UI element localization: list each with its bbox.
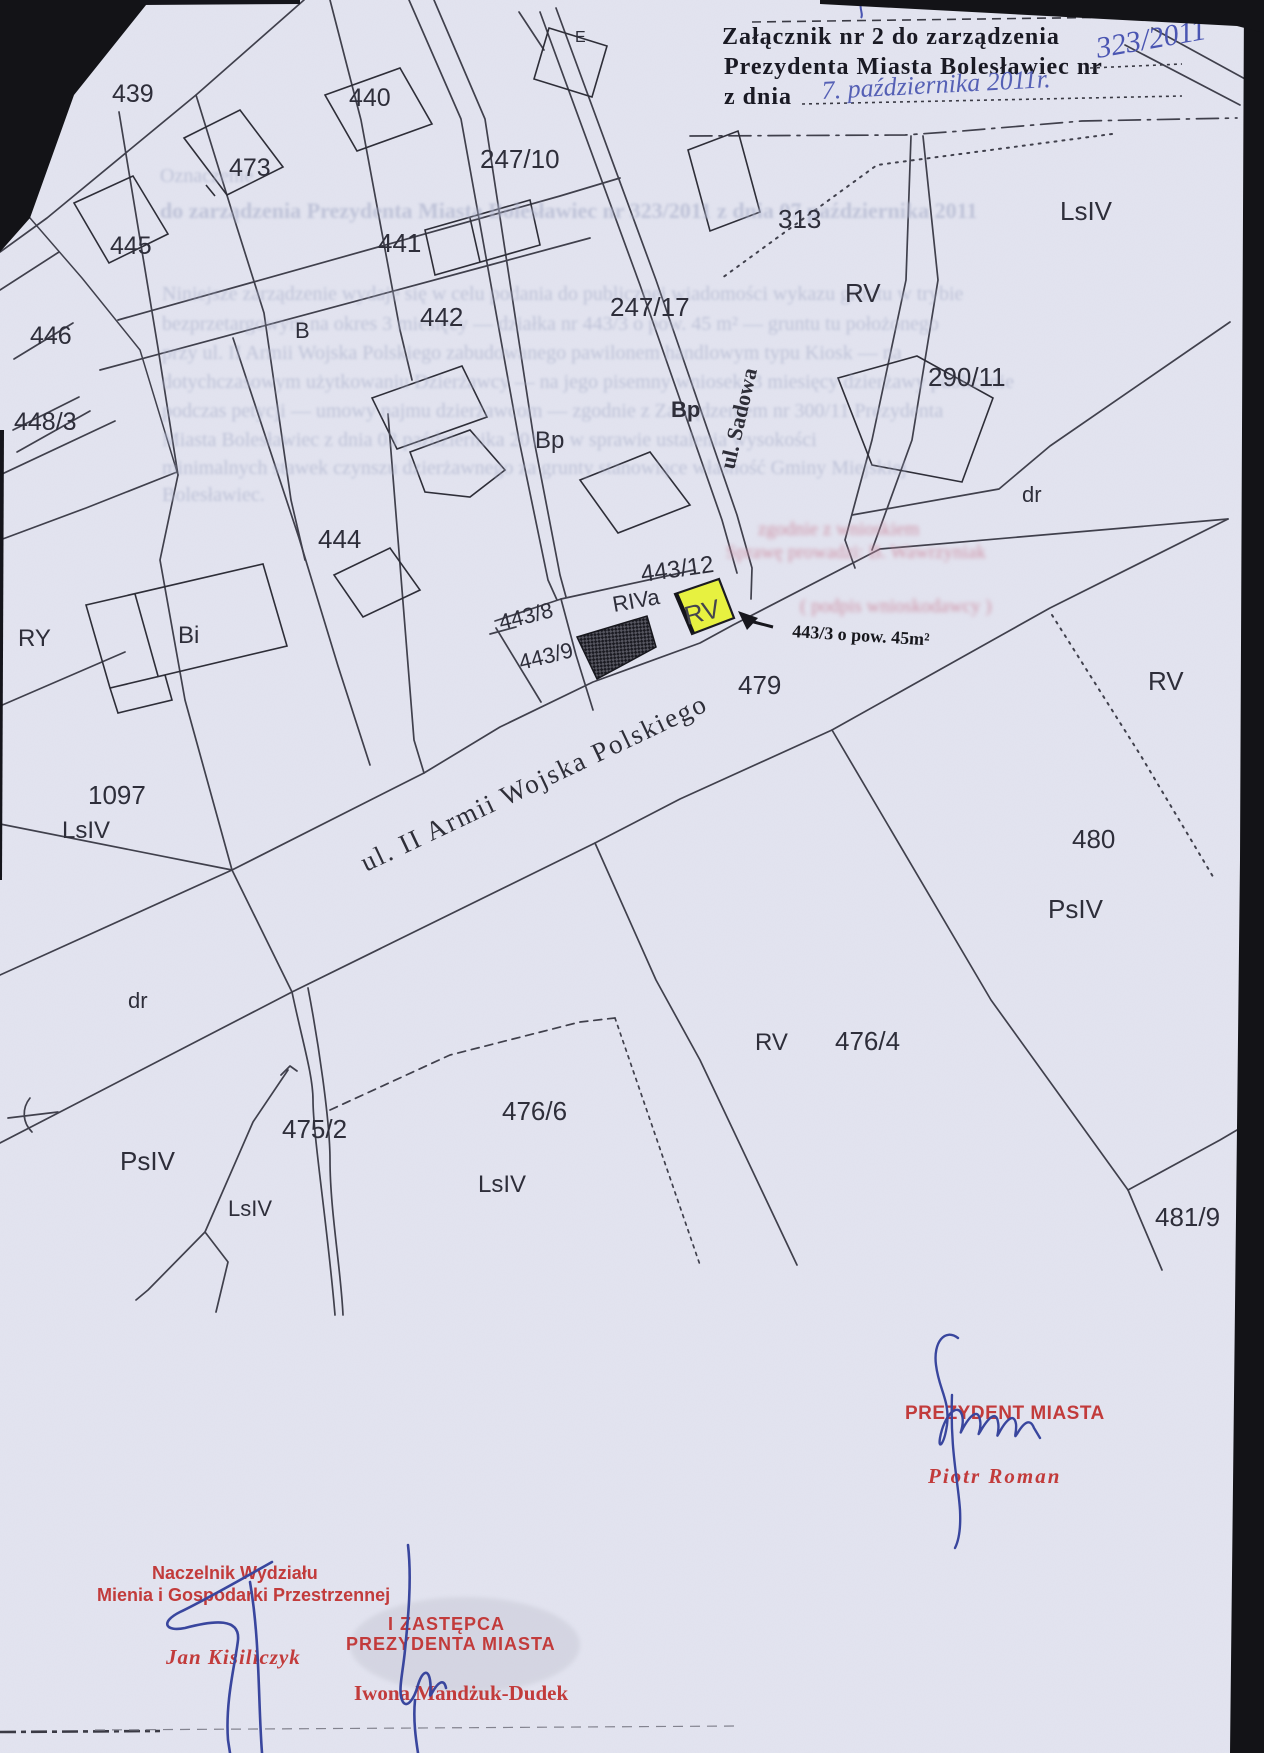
svg-text:RV: RV <box>755 1029 788 1056</box>
svg-text:PREZYDENTA MIASTA: PREZYDENTA MIASTA <box>346 1634 556 1654</box>
svg-text:B: B <box>295 318 310 343</box>
svg-text:439: 439 <box>112 80 154 108</box>
svg-text:476/6: 476/6 <box>502 1096 567 1126</box>
svg-text:247/10: 247/10 <box>480 144 560 174</box>
svg-text:dr: dr <box>1022 482 1042 507</box>
svg-text:Niniejsze zarządzenie wydaje s: Niniejsze zarządzenie wydaje się w celu … <box>162 283 964 305</box>
svg-text:442: 442 <box>420 302 463 332</box>
svg-text:Bolesławiec.: Bolesławiec. <box>162 484 265 506</box>
svg-text:dotychczasowym użytkowaniu Dzi: dotychczasowym użytkowaniu Dzierżawcy — … <box>162 371 1014 393</box>
svg-text:E: E <box>575 29 586 46</box>
svg-text:440: 440 <box>349 84 391 112</box>
svg-text:RY: RY <box>18 625 51 652</box>
svg-text:Bp: Bp <box>535 427 564 454</box>
svg-text:minimalnych stawek czynszu dzi: minimalnych stawek czynszu dzierżawnego … <box>162 457 907 479</box>
svg-text:448/3: 448/3 <box>14 408 77 436</box>
svg-text:1097: 1097 <box>88 780 146 810</box>
svg-text:480: 480 <box>1072 824 1115 854</box>
svg-text:( podpis wnioskodawcy ): ( podpis wnioskodawcy ) <box>800 596 992 617</box>
svg-text:313: 313 <box>778 204 821 234</box>
svg-text:481/9: 481/9 <box>1155 1202 1220 1232</box>
svg-text:LsIV: LsIV <box>228 1196 272 1221</box>
svg-text:473: 473 <box>229 154 271 182</box>
svg-text:podczas petycji — umowy najmu: podczas petycji — umowy najmu dzierżawco… <box>162 400 943 422</box>
svg-text:Mienia i Gospodarki Przestrzen: Mienia i Gospodarki Przestrzennej <box>97 1585 390 1605</box>
svg-text:Bp: Bp <box>671 397 700 422</box>
svg-text:PREZYDENT MIASTA: PREZYDENT MIASTA <box>905 1403 1105 1424</box>
svg-text:290/11: 290/11 <box>928 362 1006 392</box>
svg-text:247/17: 247/17 <box>610 292 690 322</box>
svg-text:Iwona Mandżuk-Dudek: Iwona Mandżuk-Dudek <box>354 1681 568 1705</box>
svg-text:479: 479 <box>738 670 781 700</box>
svg-text:Piotr Roman: Piotr Roman <box>927 1464 1061 1488</box>
svg-text:bezprzetargowym na okres 3 mie: bezprzetargowym na okres 3 miesięcy — dz… <box>162 313 939 335</box>
svg-text:441: 441 <box>378 228 421 258</box>
svg-text:PsIV: PsIV <box>120 1146 176 1176</box>
svg-text:LsIV: LsIV <box>62 817 110 844</box>
svg-text:zgodnie z wnioskiem: zgodnie z wnioskiem <box>758 519 920 540</box>
svg-text:Bi: Bi <box>178 622 199 649</box>
svg-text:LsIV: LsIV <box>1060 196 1113 226</box>
svg-text:RV: RV <box>1148 666 1184 696</box>
svg-text:446: 446 <box>30 322 72 350</box>
svg-text:Sprawę prowadzi: B. Wawrzyniak: Sprawę prowadzi: B. Wawrzyniak <box>726 542 986 563</box>
svg-text:z dnia: z dnia <box>724 84 792 110</box>
svg-text:LsIV: LsIV <box>478 1171 526 1198</box>
svg-text:Załącznik nr 2 do zarządzenia: Załącznik nr 2 do zarządzenia <box>722 24 1060 50</box>
svg-text:444: 444 <box>318 524 361 554</box>
svg-text:PsIV: PsIV <box>1048 894 1104 924</box>
svg-text:476/4: 476/4 <box>835 1026 900 1056</box>
svg-text:RV: RV <box>845 278 881 308</box>
svg-text:445: 445 <box>110 232 152 260</box>
svg-text:dr: dr <box>128 988 148 1013</box>
svg-text:przy ul. II Armii Wojska Polsk: przy ul. II Armii Wojska Polskiego zabud… <box>162 342 902 364</box>
svg-text:do zarządzenia Prezydenta Mias: do zarządzenia Prezydenta Miasta Bolesła… <box>160 198 977 223</box>
svg-text:Naczelnik Wydziału: Naczelnik Wydziału <box>152 1563 318 1583</box>
svg-text:475/2: 475/2 <box>282 1114 347 1144</box>
